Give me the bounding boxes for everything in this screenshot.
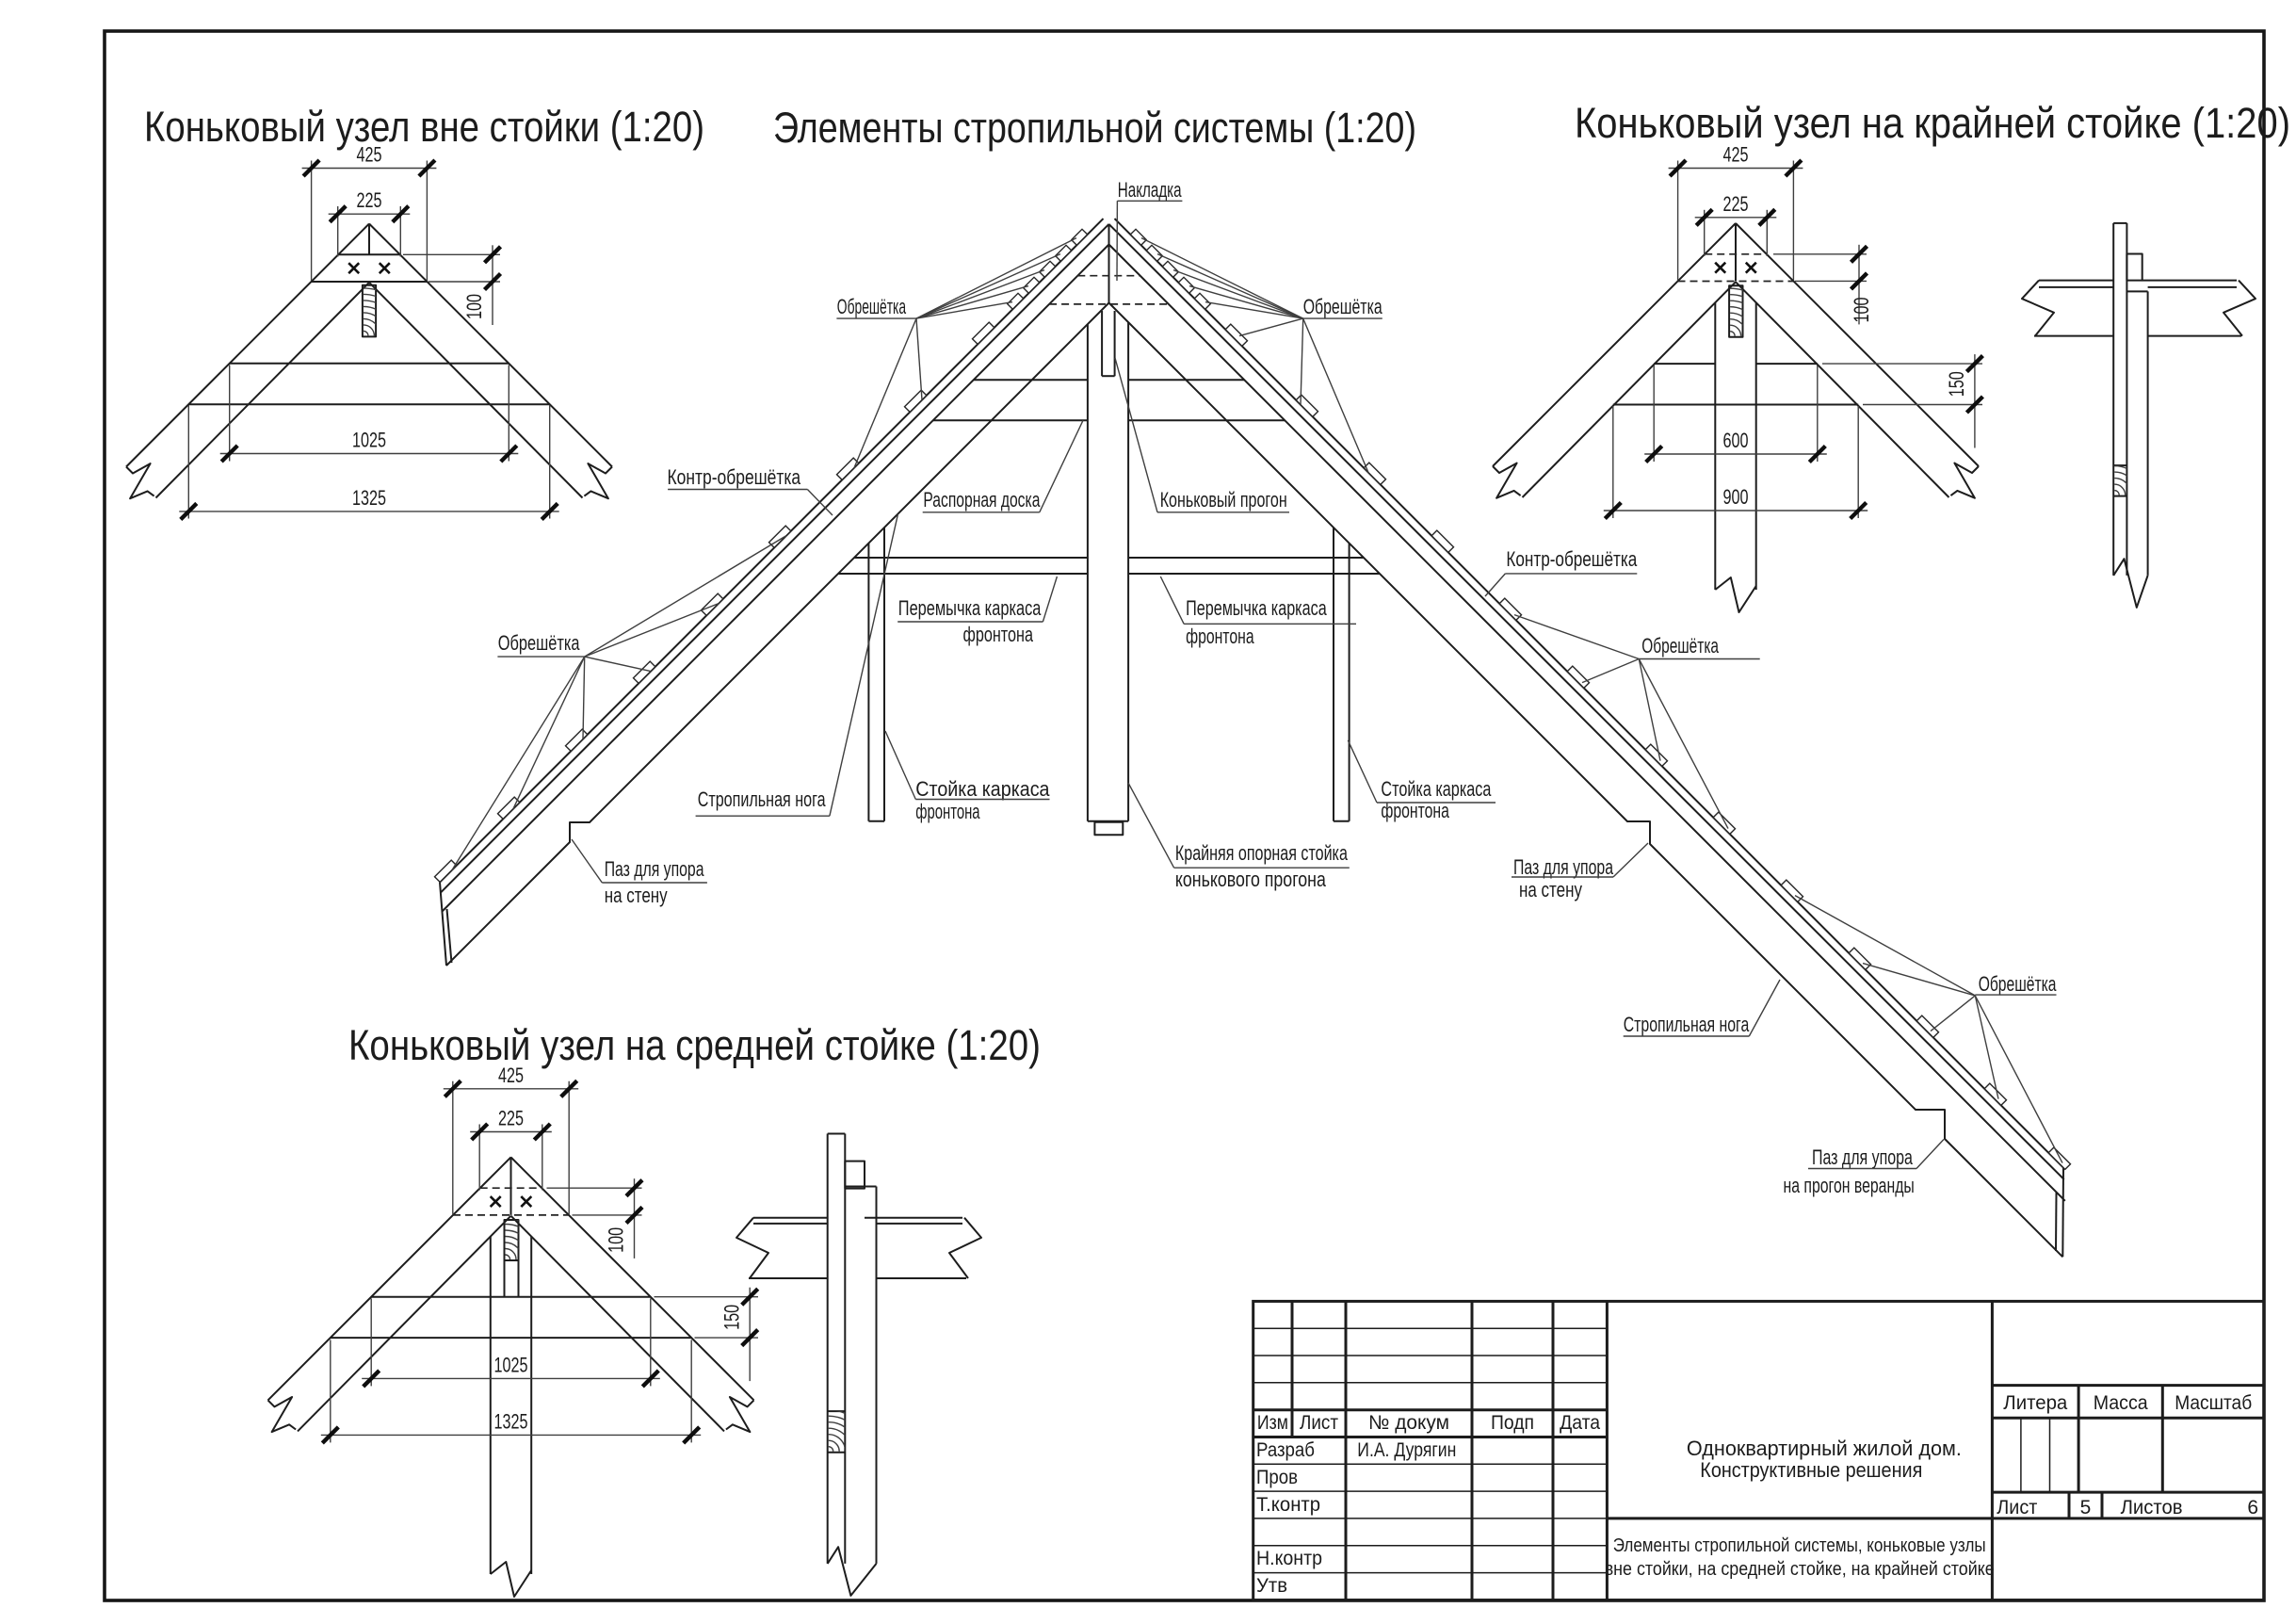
svg-text:Разраб: Разраб bbox=[1256, 1439, 1315, 1461]
svg-text:конькового прогона: конькового прогона bbox=[1175, 868, 1327, 891]
svg-text:Подп: Подп bbox=[1491, 1412, 1534, 1434]
svg-text:900: 900 bbox=[1723, 485, 1749, 509]
svg-text:Перемычка каркаса: Перемычка каркаса bbox=[898, 596, 1042, 620]
svg-text:600: 600 bbox=[1723, 429, 1749, 452]
svg-text:425: 425 bbox=[498, 1064, 524, 1087]
svg-text:Стропильная нога: Стропильная нога bbox=[698, 788, 826, 811]
svg-text:225: 225 bbox=[357, 188, 382, 212]
svg-text:на прогон веранды: на прогон веранды bbox=[1784, 1174, 1915, 1197]
svg-text:Т.контр: Т.контр bbox=[1256, 1494, 1320, 1516]
svg-text:Паз для упора: Паз для упора bbox=[1812, 1145, 1913, 1169]
svg-text:Лист: Лист bbox=[1300, 1412, 1338, 1434]
svg-text:Распорная доска: Распорная доска bbox=[923, 488, 1041, 512]
svg-text:1325: 1325 bbox=[352, 486, 386, 510]
svg-text:100: 100 bbox=[462, 294, 486, 319]
svg-text:Элементы стропильной системы,: Элементы стропильной системы, коньковые … bbox=[1613, 1535, 1986, 1556]
svg-text:фронтона: фронтона bbox=[963, 623, 1034, 646]
svg-text:на стену: на стену bbox=[605, 884, 668, 907]
svg-text:Литера: Литера bbox=[2003, 1392, 2067, 1414]
svg-text:Коньковый узел на крайней стой: Коньковый узел на крайней стойке (1:20) bbox=[1575, 99, 2290, 147]
svg-text:Паз для упора: Паз для упора bbox=[1513, 855, 1614, 879]
svg-text:фронтона: фронтона bbox=[1186, 625, 1254, 648]
svg-text:Конструктивные решения: Конструктивные решения bbox=[1700, 1458, 1922, 1482]
svg-text:Перемычка каркаса: Перемычка каркаса bbox=[1186, 596, 1327, 620]
svg-text:Коньковый узел на средней стой: Коньковый узел на средней стойке (1:20) bbox=[348, 1021, 1041, 1069]
svg-text:Контр-обрешётка: Контр-обрешётка bbox=[668, 465, 801, 489]
svg-text:1025: 1025 bbox=[494, 1353, 528, 1376]
svg-text:Паз для упора: Паз для упора bbox=[605, 857, 704, 881]
svg-text:Обрешётка: Обрешётка bbox=[1641, 634, 1719, 658]
svg-text:Стойка каркаса: Стойка каркаса bbox=[1381, 777, 1492, 801]
svg-text:Стропильная нога: Стропильная нога bbox=[1624, 1013, 1750, 1036]
svg-text:Масса: Масса bbox=[2094, 1392, 2148, 1414]
svg-text:Масштаб: Масштаб bbox=[2175, 1392, 2252, 1414]
svg-text:Н.контр: Н.контр bbox=[1256, 1548, 1322, 1569]
svg-text:Дата: Дата bbox=[1560, 1412, 1600, 1434]
svg-text:425: 425 bbox=[1723, 143, 1749, 167]
svg-text:1025: 1025 bbox=[352, 429, 386, 452]
svg-text:Обрешётка: Обрешётка bbox=[1303, 295, 1383, 318]
svg-text:Листов: Листов bbox=[2121, 1497, 2183, 1518]
svg-text:150: 150 bbox=[720, 1305, 744, 1330]
svg-text:Коньковый прогон: Коньковый прогон bbox=[1160, 488, 1287, 512]
svg-text:Стойка каркаса: Стойка каркаса bbox=[915, 777, 1050, 801]
svg-text:100: 100 bbox=[1850, 298, 1873, 323]
svg-text:Элементы стропильной системы (: Элементы стропильной системы (1:20) bbox=[773, 104, 1416, 152]
svg-text:Лист: Лист bbox=[1997, 1497, 2037, 1518]
svg-text:Одноквартирный жилой дом.: Одноквартирный жилой дом. bbox=[1687, 1437, 1962, 1460]
svg-text:на стену: на стену bbox=[1519, 878, 1582, 901]
svg-text:Обрешётка: Обрешётка bbox=[837, 295, 907, 318]
svg-text:150: 150 bbox=[1945, 371, 1968, 397]
svg-text:1325: 1325 bbox=[494, 1409, 528, 1433]
svg-text:225: 225 bbox=[1723, 192, 1749, 216]
svg-text:№ докум: № докум bbox=[1368, 1412, 1449, 1434]
svg-text:И.А. Дурягин: И.А. Дурягин bbox=[1357, 1439, 1456, 1461]
svg-text:Изм: Изм bbox=[1257, 1412, 1288, 1434]
svg-text:Пров: Пров bbox=[1256, 1467, 1298, 1488]
svg-text:425: 425 bbox=[357, 143, 382, 167]
svg-text:Контр-обрешётка: Контр-обрешётка bbox=[1506, 547, 1637, 571]
svg-text:фронтона: фронтона bbox=[915, 800, 980, 823]
svg-text:Коньковый узел вне стойки (1:2: Коньковый узел вне стойки (1:20) bbox=[144, 103, 704, 151]
svg-text:Обрешётка: Обрешётка bbox=[1979, 972, 2057, 996]
svg-text:5: 5 bbox=[2080, 1497, 2092, 1518]
svg-text:Накладка: Накладка bbox=[1118, 178, 1182, 202]
svg-text:Обрешётка: Обрешётка bbox=[498, 631, 580, 655]
svg-text:6: 6 bbox=[2247, 1497, 2258, 1518]
svg-text:вне стойки, на средней стойке,: вне стойки, на средней стойке, на крайне… bbox=[1605, 1559, 1995, 1580]
svg-text:Крайняя опорная стойка: Крайняя опорная стойка bbox=[1175, 841, 1349, 865]
svg-text:Утв: Утв bbox=[1256, 1575, 1287, 1597]
svg-text:225: 225 bbox=[498, 1107, 524, 1130]
svg-text:100: 100 bbox=[605, 1227, 628, 1253]
